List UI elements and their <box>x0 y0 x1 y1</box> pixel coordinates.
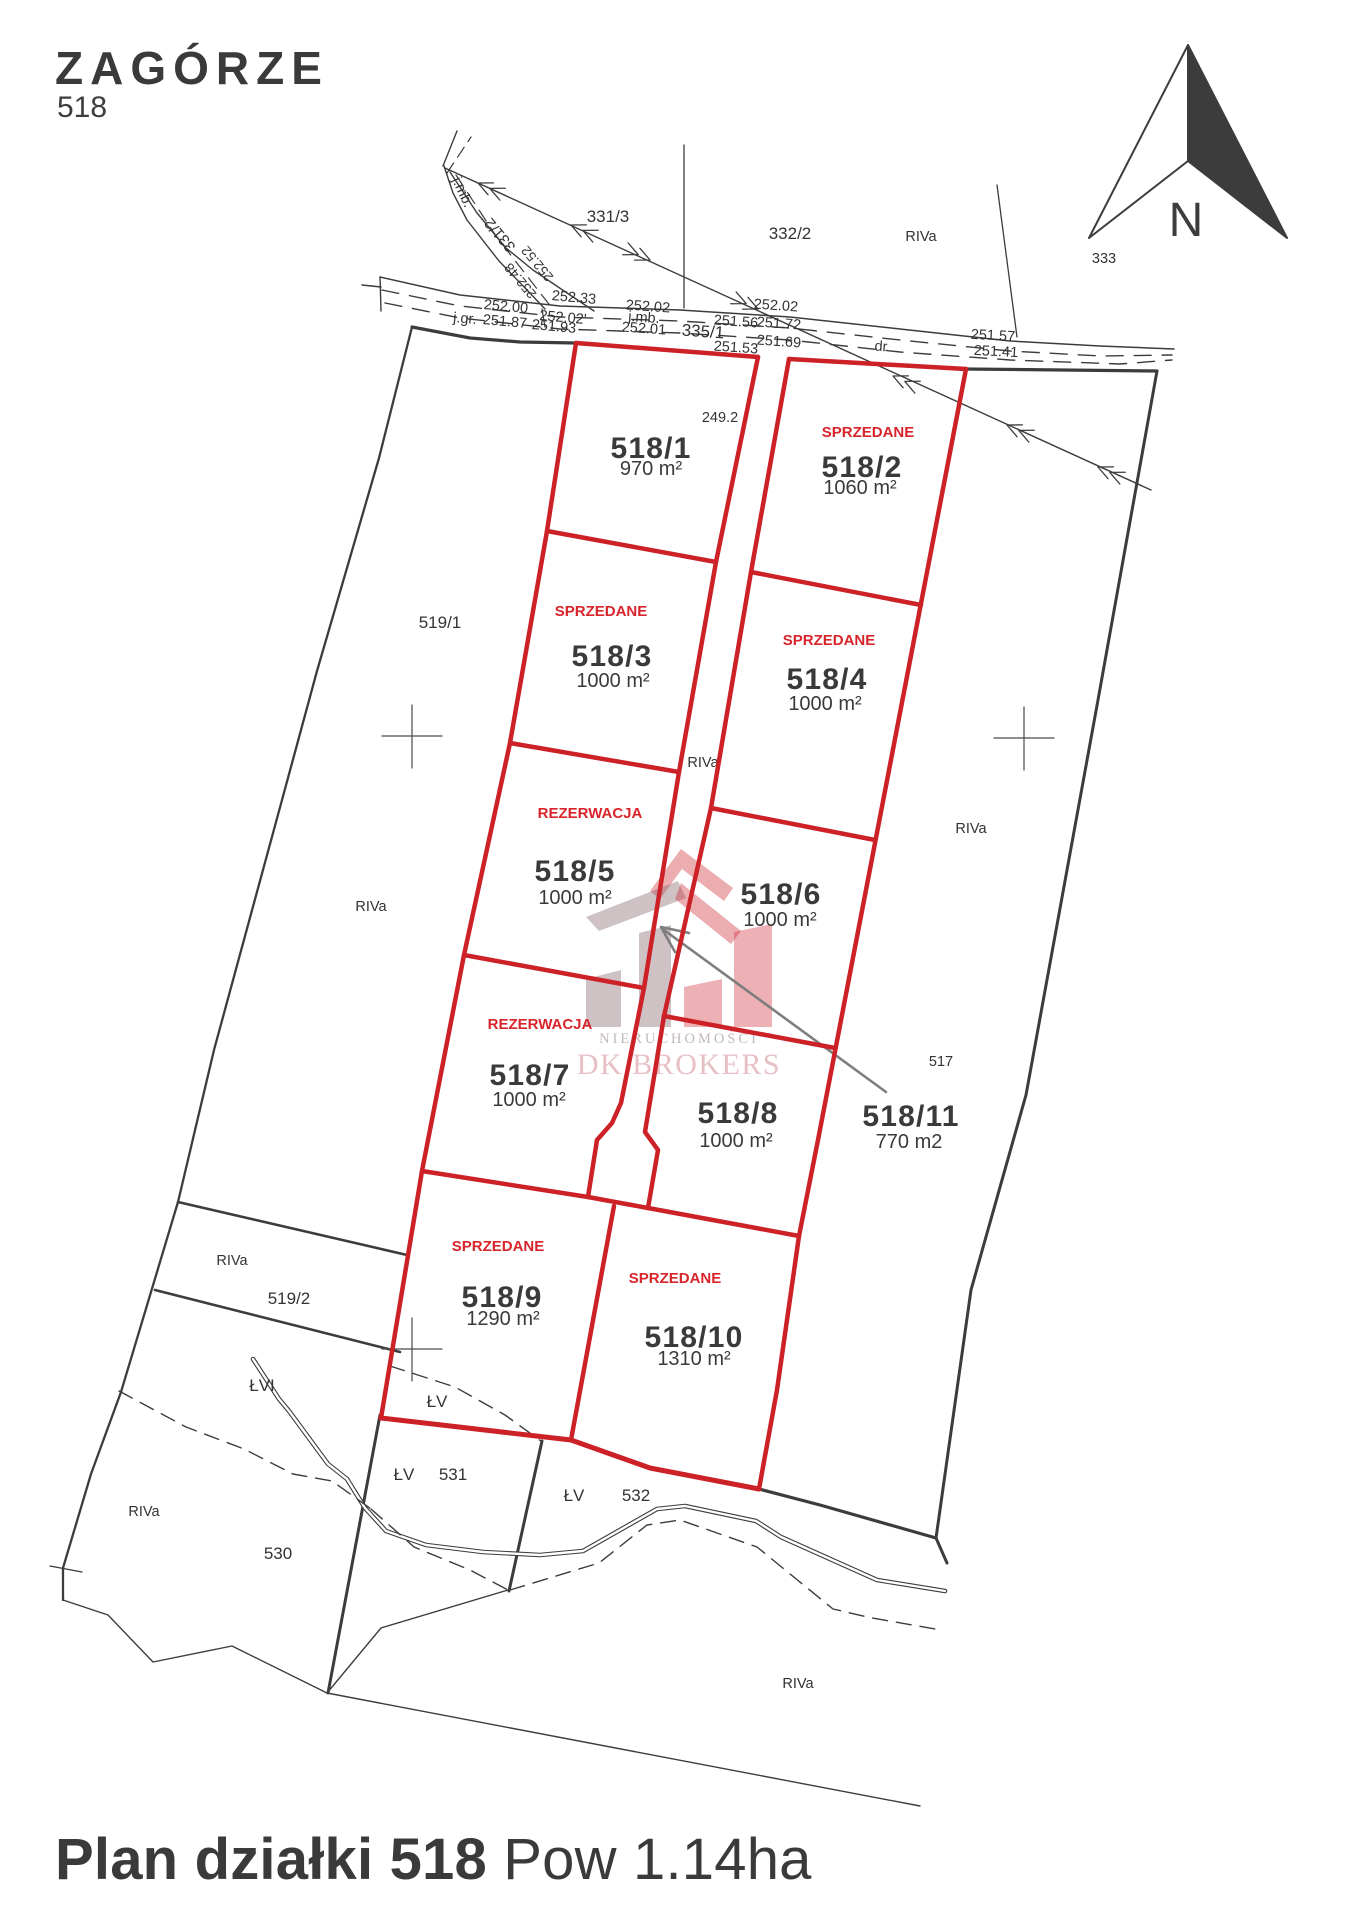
svg-text:RIVa: RIVa <box>955 821 987 837</box>
svg-text:REZERWACJA: REZERWACJA <box>538 805 643 822</box>
svg-text:1000 m²: 1000 m² <box>538 887 612 909</box>
svg-text:j.gr.: j.gr. <box>452 310 478 328</box>
svg-text:DK BROKERS: DK BROKERS <box>577 1048 781 1081</box>
svg-text:518/3: 518/3 <box>571 640 652 673</box>
svg-text:252.01: 252.01 <box>621 319 666 338</box>
svg-text:1290 m²: 1290 m² <box>466 1308 540 1330</box>
svg-text:ŁV: ŁV <box>394 1465 415 1484</box>
svg-text:970 m²: 970 m² <box>620 458 683 480</box>
svg-text:518: 518 <box>57 91 107 124</box>
svg-text:770 m2: 770 m2 <box>876 1131 943 1153</box>
svg-text:251.56: 251.56 <box>713 312 758 331</box>
svg-text:531: 531 <box>439 1465 467 1484</box>
svg-text:SPRZEDANE: SPRZEDANE <box>822 424 915 441</box>
svg-text:1310 m²: 1310 m² <box>657 1348 731 1370</box>
svg-text:1000 m²: 1000 m² <box>699 1130 773 1152</box>
svg-text:1060 m²: 1060 m² <box>823 477 897 499</box>
svg-text:331/3: 331/3 <box>587 207 630 226</box>
svg-text:SPRZEDANE: SPRZEDANE <box>629 1270 722 1287</box>
svg-text:251.41: 251.41 <box>973 343 1018 361</box>
svg-text:SPRZEDANE: SPRZEDANE <box>783 632 876 649</box>
svg-text:1000 m²: 1000 m² <box>743 909 817 931</box>
svg-text:ŁV: ŁV <box>427 1392 448 1411</box>
svg-text:N: N <box>1169 194 1204 247</box>
svg-text:RIVa: RIVa <box>905 229 937 245</box>
svg-text:518/6: 518/6 <box>740 878 821 911</box>
svg-text:SPRZEDANE: SPRZEDANE <box>555 603 648 620</box>
svg-text:518/11: 518/11 <box>862 1100 959 1133</box>
svg-text:1000 m²: 1000 m² <box>576 670 650 692</box>
svg-text:251.69: 251.69 <box>756 332 801 351</box>
svg-text:RIVa: RIVa <box>782 1676 814 1692</box>
svg-text:REZERWACJA: REZERWACJA <box>488 1016 593 1033</box>
svg-text:532: 532 <box>622 1486 650 1505</box>
svg-text:NIERUCHOMOŚCI: NIERUCHOMOŚCI <box>599 1030 759 1047</box>
svg-text:252.02: 252.02 <box>753 296 798 315</box>
svg-text:dr: dr <box>874 339 888 356</box>
svg-text:517: 517 <box>929 1054 953 1070</box>
svg-text:ŁV: ŁV <box>564 1486 585 1505</box>
svg-text:ZAGÓRZE: ZAGÓRZE <box>55 42 329 94</box>
svg-text:249.2: 249.2 <box>702 410 738 426</box>
svg-text:518/5: 518/5 <box>534 855 615 888</box>
svg-text:RIVa: RIVa <box>128 1504 160 1520</box>
svg-text:518/8: 518/8 <box>697 1097 778 1130</box>
svg-text:ŁVI: ŁVI <box>249 1376 275 1395</box>
svg-text:332/2: 332/2 <box>769 224 812 243</box>
svg-text:518/4: 518/4 <box>786 663 867 696</box>
svg-text:519/2: 519/2 <box>268 1289 311 1308</box>
svg-text:251.72: 251.72 <box>756 314 801 333</box>
svg-text:530: 530 <box>264 1544 292 1563</box>
svg-text:1000 m²: 1000 m² <box>492 1089 566 1111</box>
svg-text:SPRZEDANE: SPRZEDANE <box>452 1238 545 1255</box>
svg-text:333: 333 <box>1092 251 1116 267</box>
svg-text:Plan działki 518 Pow 1.14ha: Plan działki 518 Pow 1.14ha <box>55 1827 812 1892</box>
svg-text:RIVa: RIVa <box>216 1253 248 1269</box>
svg-text:518/7: 518/7 <box>489 1059 570 1092</box>
svg-text:1000 m²: 1000 m² <box>788 693 862 715</box>
svg-text:519/1: 519/1 <box>419 613 462 632</box>
svg-text:RIVa: RIVa <box>355 899 387 915</box>
svg-text:RIVa: RIVa <box>687 755 719 771</box>
